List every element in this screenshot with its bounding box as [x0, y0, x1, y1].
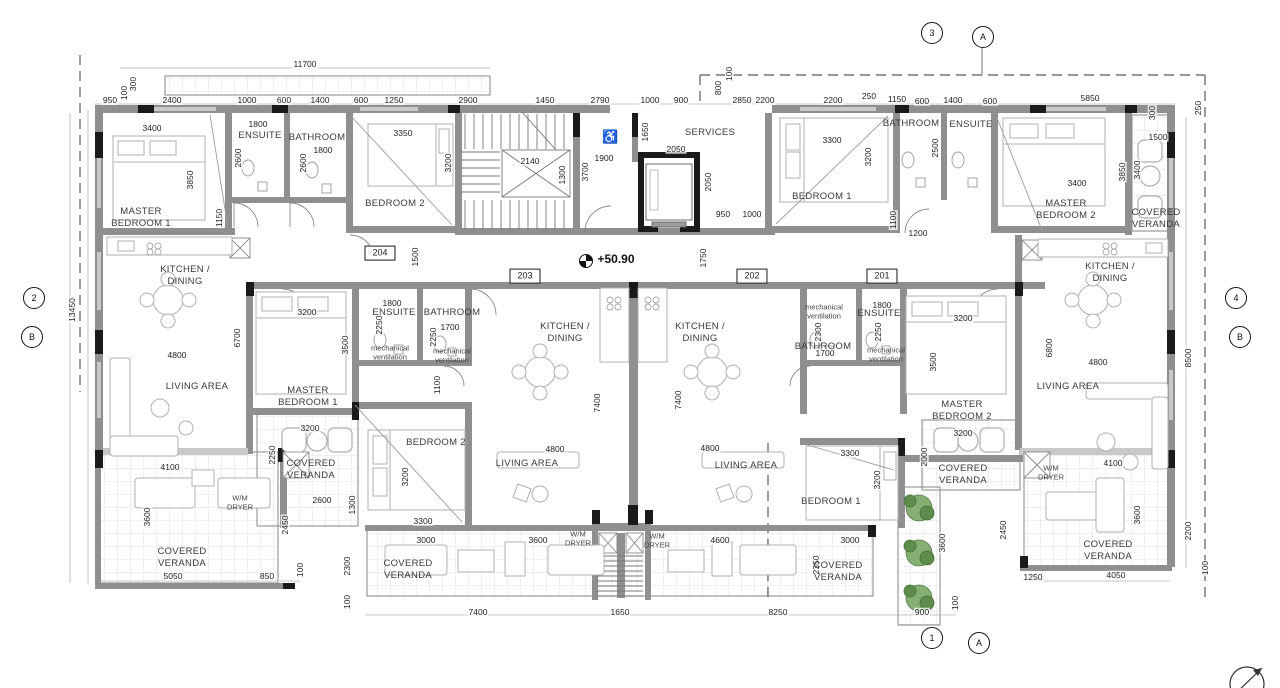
dimension-label: 1400: [310, 96, 331, 105]
dimension-label: 3200: [953, 429, 974, 438]
dimension-label: 1000: [640, 96, 661, 105]
dimension-label: 1150: [887, 95, 907, 104]
dimension-label: 3200: [444, 153, 453, 174]
section-marker-icon: A: [968, 632, 988, 652]
room-label-master-bedroom-2: MASTER BEDROOM 2: [932, 399, 992, 423]
dimension-label: 950: [715, 210, 731, 219]
dimension-label: 3600: [143, 507, 152, 528]
dimension-label: 2790: [590, 96, 611, 105]
dimension-label: 1900: [594, 154, 615, 163]
room-label-bedroom-1: BEDROOM 1: [792, 191, 852, 203]
dimension-label: 1100: [433, 375, 442, 395]
dimension-label: 3400: [142, 124, 163, 133]
dimension-label: 4600: [710, 536, 731, 545]
dimension-label: 3200: [864, 147, 873, 168]
dimension-label: 600: [276, 96, 292, 105]
dimension-label: 2200: [1184, 521, 1193, 542]
dimension-label: 1500: [1148, 133, 1169, 142]
dimension-label: 850: [259, 572, 275, 581]
dimension-label: 1000: [742, 210, 763, 219]
dimension-label: 3200: [401, 467, 410, 488]
dimension-label: 11700: [292, 60, 317, 69]
dimension-label: 4800: [700, 444, 721, 453]
dimension-label: 100: [296, 562, 305, 578]
dimension-label: 4800: [545, 445, 566, 454]
dimension-label: 3000: [416, 536, 437, 545]
dimension-label: 1650: [641, 122, 650, 143]
room-label-wm-dryer: W/M DRYER: [644, 532, 670, 551]
dimension-label: 4800: [167, 351, 188, 360]
room-label-covered-veranda: COVERED VERANDA: [1083, 539, 1132, 563]
dimension-label: 1750: [699, 248, 708, 269]
dimension-label: 1100: [889, 210, 898, 230]
dimension-label: 3850: [186, 170, 195, 191]
dimension-label: 3850: [1118, 162, 1127, 183]
dimension-label: 250: [1194, 100, 1203, 116]
room-label-wm-dryer: W/M DRYER: [565, 530, 591, 549]
tree-icon: [904, 495, 934, 611]
dimension-label: 2200: [823, 96, 844, 105]
section-marker-icon: 1: [921, 627, 941, 647]
section-marker-icon: B: [21, 326, 41, 346]
dimension-label: 1250: [384, 96, 405, 105]
dimension-label: 2600: [299, 153, 308, 174]
dimension-label: 1400: [943, 96, 964, 105]
lift: [646, 164, 692, 227]
dimension-label: 4100: [160, 463, 181, 472]
room-label-bedroom-1: BEDROOM 1: [801, 496, 861, 508]
dimension-label: 3600: [938, 533, 947, 554]
room-label-kitchen-dining: KITCHEN / DINING: [1085, 261, 1135, 285]
dimension-label: 5050: [163, 572, 184, 581]
dimension-label: 4800: [1088, 358, 1109, 367]
dimension-label: 900: [673, 96, 689, 105]
dimension-label: 100: [1201, 560, 1210, 576]
dimension-label: 8500: [1184, 348, 1193, 369]
dimension-label: 1700: [440, 323, 461, 332]
room-label-bathroom: BATHROOM: [883, 118, 940, 130]
room-label-master-bedroom-2: MASTER BEDROOM 2: [1036, 198, 1096, 222]
room-label-wm-dryer: W/M DRYER: [1038, 464, 1064, 483]
dimension-label: 3500: [929, 352, 938, 373]
unit-tag-204: 204: [364, 246, 395, 261]
room-label-wm-dryer: W/M DRYER: [227, 494, 253, 513]
room-label-living-area: LIVING AREA: [1037, 381, 1099, 393]
dimension-label: 7400: [674, 390, 683, 411]
room-label-bathroom: BATHROOM: [424, 307, 481, 319]
dimension-label: 1800: [313, 146, 334, 155]
room-label-living-area: LIVING AREA: [166, 381, 228, 393]
dimension-label: 2600: [312, 496, 333, 505]
room-label-mechanical-ventilation: mechanical ventilation: [371, 344, 409, 363]
dimension-label: 2900: [458, 96, 479, 105]
dimension-label: 1300: [348, 495, 357, 516]
dimension-label: 4100: [1103, 459, 1124, 468]
dimension-label: 950: [102, 96, 118, 105]
dimension-label: 5850: [1080, 94, 1101, 103]
dimension-label: 2300: [343, 556, 352, 577]
dimension-label: 2200: [755, 96, 776, 105]
dimension-label: 2250: [429, 327, 438, 348]
dimension-label: 2450: [281, 515, 290, 536]
unit-tag-201: 201: [866, 269, 897, 284]
room-label-bathroom: BATHROOM: [289, 132, 346, 144]
room-label-kitchen-dining: KITCHEN / DINING: [675, 321, 725, 345]
section-marker-icon: A: [972, 26, 992, 46]
dimension-label: 7400: [468, 608, 489, 617]
room-label-master-bedroom-1: MASTER BEDROOM 1: [111, 206, 171, 230]
dimension-label: 1000: [237, 96, 258, 105]
dimension-label: 100: [951, 595, 960, 611]
dimension-label: 1450: [535, 96, 556, 105]
section-marker-icon: 2: [23, 287, 43, 307]
room-label-master-bedroom-1: MASTER BEDROOM 1: [278, 385, 338, 409]
dimension-label: 2850: [732, 96, 753, 105]
room-label-ensuite: ENSUITE: [857, 308, 900, 320]
room-label-living-area: LIVING AREA: [496, 458, 558, 470]
room-label-covered-veranda: COVERED VERANDA: [938, 463, 987, 487]
room-label-covered-veranda: COVERED VERANDA: [157, 546, 206, 570]
dimension-label: 2300: [814, 322, 823, 343]
dimension-label: 6700: [233, 328, 242, 349]
dimension-label: 2250: [874, 322, 883, 343]
dimension-label: 1500: [411, 247, 420, 268]
dimension-label: 3400: [1067, 179, 1088, 188]
dimension-label: 3700: [581, 162, 590, 183]
dimension-label: 2400: [162, 96, 183, 105]
room-label-kitchen-dining: KITCHEN / DINING: [540, 321, 590, 345]
dimension-label: 3200: [297, 308, 318, 317]
level-label: +50.90: [596, 253, 635, 265]
room-label-ensuite: ENSUITE: [949, 119, 992, 131]
room-label-services: SERVICES: [685, 127, 735, 139]
dimension-label: 800: [714, 80, 723, 96]
room-label-bedroom-2: BEDROOM 2: [365, 198, 425, 210]
dimension-label: 6800: [1045, 338, 1054, 359]
dimension-label: 3600: [528, 536, 549, 545]
dimension-label: 3200: [300, 424, 321, 433]
dimension-label: 4050: [1106, 571, 1127, 580]
dimension-label: 3300: [413, 517, 434, 526]
dimension-label: 2600: [234, 148, 243, 169]
room-label-covered-veranda: COVERED VERANDA: [813, 560, 862, 584]
dimension-label: 1800: [248, 120, 269, 129]
dimension-label: 3300: [840, 449, 861, 458]
room-label-ensuite: ENSUITE: [372, 307, 415, 319]
dimension-label: 300: [129, 76, 138, 92]
dimension-label: 7400: [593, 393, 602, 414]
dimension-label: 2050: [704, 172, 713, 193]
dimension-label: 250: [861, 92, 877, 101]
dimension-label: 2000: [920, 447, 929, 468]
dimension-label: 300: [1148, 105, 1157, 121]
dimension-label: 600: [982, 97, 998, 106]
dimension-label: 2140: [520, 157, 541, 166]
dimension-label: 600: [914, 97, 930, 106]
unit-tag-202: 202: [736, 269, 767, 284]
dimension-label: 3500: [341, 335, 350, 356]
dimension-label: 3200: [953, 314, 974, 323]
dimension-label: 1650: [610, 608, 631, 617]
dimension-label: 1200: [908, 229, 929, 238]
dimension-label: 3600: [1133, 505, 1142, 526]
north-arrow-icon: [1230, 667, 1264, 688]
dimension-label: 2500: [931, 138, 940, 159]
dimension-label: 3200: [873, 470, 882, 491]
dimension-label: 2450: [999, 520, 1008, 541]
dimension-label: 100: [343, 594, 352, 610]
room-label-kitchen-dining: KITCHEN / DINING: [160, 264, 210, 288]
dimension-label: 1150: [215, 208, 224, 228]
dimension-label: 3000: [840, 536, 861, 545]
room-label-mechanical-ventilation: mechanical ventilation: [805, 303, 843, 322]
dimension-label: 8250: [768, 608, 789, 617]
dimension-label: 2250: [268, 445, 277, 466]
wheelchair-icon: ♿: [602, 129, 618, 144]
section-marker-icon: 3: [921, 22, 941, 42]
section-marker-icon: B: [1229, 326, 1249, 346]
room-label-covered-veranda: COVERED VERANDA: [1131, 207, 1180, 231]
dimension-label: 600: [353, 96, 369, 105]
dimension-label: 3300: [822, 136, 843, 145]
dimension-label: 1800: [382, 299, 403, 308]
dimension-label: 13450: [68, 297, 77, 323]
dimension-label: 100: [725, 66, 734, 82]
room-label-mechanical-ventilation: mechanical ventilation: [867, 346, 905, 365]
dimension-label: 1250: [1023, 573, 1044, 582]
room-label-living-area: LIVING AREA: [715, 460, 777, 472]
room-label-covered-veranda: COVERED VERANDA: [383, 558, 432, 582]
room-label-ensuite: ENSUITE: [238, 130, 281, 142]
room-label-mechanical-ventilation: mechanical ventilation: [433, 347, 471, 366]
level-marker-icon: [580, 255, 593, 268]
section-marker-icon: 4: [1225, 287, 1245, 307]
room-label-bathroom: BATHROOM: [795, 341, 852, 353]
dimension-label: 2050: [666, 145, 687, 154]
dimension-label: 3400: [1133, 160, 1142, 181]
floor-plan: ♿ 11700 950 100 300 2400 1000 600 1400 6…: [0, 0, 1280, 688]
room-label-covered-veranda: COVERED VERANDA: [286, 458, 335, 482]
room-label-bedroom-2: BEDROOM 2: [406, 437, 466, 449]
dimension-label: 3350: [393, 129, 414, 138]
unit-tag-203: 203: [509, 269, 540, 284]
dimension-label: 1300: [558, 165, 567, 186]
